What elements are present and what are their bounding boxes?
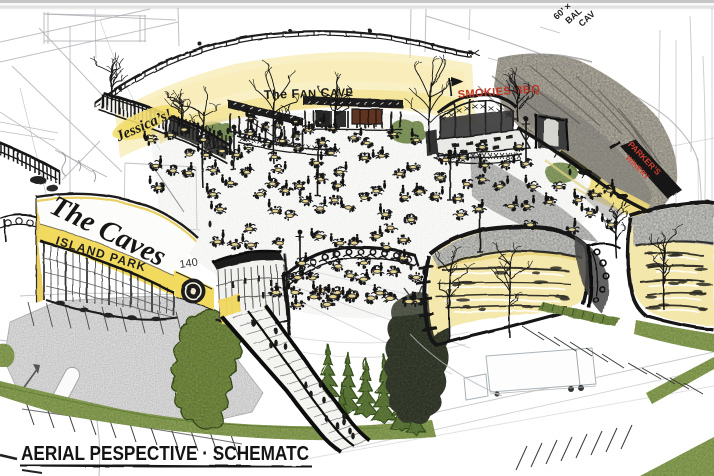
svg-text:AERIAL PESPECTIVE · SCHEMATC: AERIAL PESPECTIVE · SCHEMATC <box>21 443 309 465</box>
svg-text:140: 140 <box>179 257 199 271</box>
